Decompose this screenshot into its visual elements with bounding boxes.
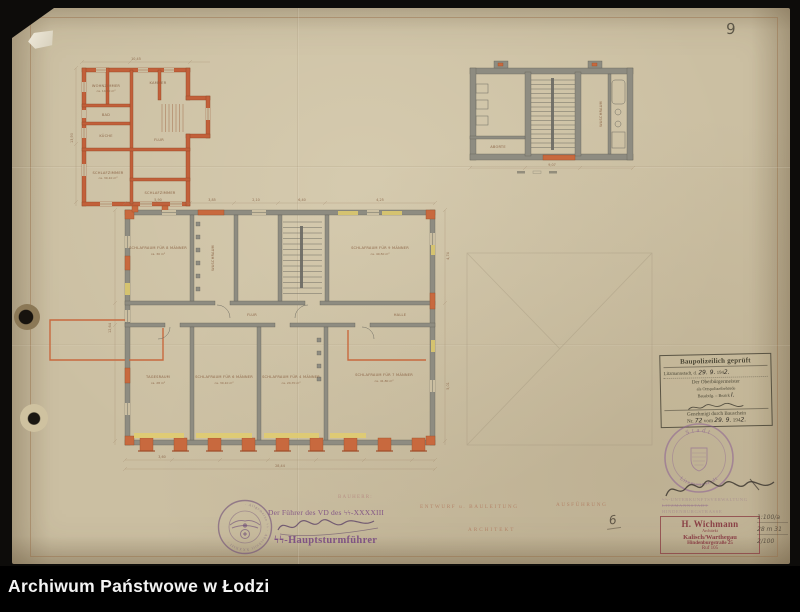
dim-label: 28,44 bbox=[275, 464, 285, 468]
dim-label: 3,60 bbox=[158, 455, 166, 459]
upper-stair-treads bbox=[162, 104, 183, 132]
stamp-year-hand: 2. bbox=[724, 368, 730, 375]
room-label: SCHLAFRAUM FÜR 9 MÄNNER bbox=[351, 245, 409, 250]
architect-title: Architekt bbox=[662, 528, 758, 533]
page-number: 9 bbox=[726, 20, 736, 38]
svg-text:· Allgemeine ϟϟ · Abschnitt XX: · Allgemeine ϟϟ · Abschnitt XXXXIII · bbox=[226, 502, 270, 551]
architect-stamp: H. Wichmann Architekt Kalisch/Warthegau … bbox=[660, 516, 760, 554]
dim-label: 4,25 bbox=[376, 198, 384, 202]
faded-stamp-line: Litzmannstadt bbox=[662, 503, 778, 508]
dim-label: 13,90 bbox=[70, 133, 74, 143]
seal-ring-text: · Allgemeine ϟϟ · Abschnitt XXXXIII · bbox=[226, 502, 270, 551]
architect-phone: Ruf 105 bbox=[662, 546, 758, 551]
area-label: ca. 40,50 m² bbox=[370, 252, 390, 256]
pencil-note: 28 m 31 bbox=[757, 526, 788, 535]
area-label: ca. 30 m² bbox=[151, 252, 166, 256]
stamp-place: Litzmannstadt, d. bbox=[664, 371, 698, 377]
dim-label: 5,90 bbox=[154, 198, 162, 202]
form-label-client: BAUHERR: bbox=[338, 495, 373, 500]
dim-label: 2,10 bbox=[252, 198, 260, 202]
room-label: TAGESRAUM bbox=[145, 375, 170, 379]
building-police-approval-stamp: Baupolizeilich geprüft Litzmannstadt, d.… bbox=[659, 353, 772, 428]
room-label: SCHLAFRAUM FÜR 4 MÄNNER bbox=[262, 374, 320, 379]
punch-hole bbox=[14, 304, 40, 330]
stamp-dept-hand: I. bbox=[731, 391, 735, 398]
window-piers bbox=[138, 438, 427, 451]
area-label: ca. 41,80 m² bbox=[374, 379, 394, 383]
pencil-note: 2/100 bbox=[757, 538, 788, 546]
stamp-vom-year-hand: 2. bbox=[740, 416, 746, 423]
punch-hole bbox=[20, 404, 48, 432]
room-label: WASCHRAUM bbox=[211, 245, 215, 271]
archive-photo: WOHNZIMMER ca. 14,60 m² BAD KÜCHE SCHLAF… bbox=[0, 0, 800, 612]
architect-city: Kalisch/Warthegau bbox=[662, 534, 758, 541]
form-label-architect: ARCHITEKT bbox=[468, 527, 515, 533]
faded-unit-stamp: ϟϟ-Unterkunftsverwaltung Litzmannstadt H… bbox=[662, 497, 778, 515]
partition-outline bbox=[348, 330, 426, 360]
area-label: ca. 24,70 m² bbox=[281, 381, 301, 385]
stair-rail bbox=[300, 226, 303, 288]
area-label: ca. 14,60 m² bbox=[96, 89, 116, 93]
room-label: BAD bbox=[102, 113, 110, 117]
stamp-dept-label: Bauabtlg. – Bezirk bbox=[697, 392, 729, 398]
form-label-execution: AUSFÜHRUNG bbox=[556, 502, 607, 508]
room-label: SCHLAFZIMMER bbox=[145, 191, 176, 195]
ss-round-seal: · Allgemeine ϟϟ · Abschnitt XXXXIII · bbox=[216, 498, 274, 556]
stairwell-plan: ABORTE WASCHRAUM 9,07 bbox=[468, 61, 635, 174]
pencil-note: 1:100/a bbox=[757, 514, 788, 523]
archive-bar-title: Archiwum Państwowe w Łodzi bbox=[8, 576, 270, 597]
room-label: FLUR bbox=[247, 313, 257, 317]
pencil-note-six: 6 bbox=[605, 512, 621, 530]
dim-label: 10,45 bbox=[131, 57, 141, 61]
coat-of-arms-shield bbox=[691, 448, 707, 471]
archive-bar: Archiwum Państwowe w Łodzi bbox=[0, 566, 800, 612]
dim-label: 9,07 bbox=[548, 163, 556, 167]
dim-label: 4,74 bbox=[446, 252, 450, 260]
svg-text:Stadt: Stadt bbox=[685, 427, 714, 437]
form-label-design: ENTWURF u. BAULEITUNG bbox=[420, 504, 519, 510]
pencil-construction-lines bbox=[467, 253, 652, 445]
dim-label: 12,64 bbox=[108, 323, 112, 333]
room-label: KÜCHE bbox=[99, 133, 113, 138]
ss-rank-line: ϟϟ-Hauptsturmführer bbox=[274, 535, 377, 546]
room-label: SCHLAFZIMMER bbox=[93, 171, 124, 175]
room-label: SCHLAFRAUM FÜR 6 MÄNNER bbox=[195, 374, 253, 379]
seal-text-top: Stadt bbox=[685, 427, 714, 437]
upper-floor-plan: WOHNZIMMER ca. 14,60 m² BAD KÜCHE SCHLAF… bbox=[70, 57, 210, 206]
room-label: SCHLAFRAUM FÜR 7 MÄNNER bbox=[355, 372, 413, 377]
stamp-date-hand: 29. 9. bbox=[698, 369, 715, 376]
area-label: ca. 30,10 m² bbox=[214, 381, 234, 385]
approval-stamp-title: Baupolizeilich geprüft bbox=[663, 356, 767, 368]
dim-label: 6,40 bbox=[298, 198, 306, 202]
room-label: ABORTE bbox=[490, 145, 506, 149]
eagle-emblem bbox=[230, 521, 260, 539]
faded-stamp-line: ϟϟ-Unterkunftsverwaltung bbox=[662, 497, 778, 502]
paper-sheet: WOHNZIMMER ca. 14,60 m² BAD KÜCHE SCHLAF… bbox=[12, 8, 790, 564]
area-label: ca. 30,10 m² bbox=[98, 176, 118, 180]
room-label: WASCHRAUM bbox=[599, 101, 603, 127]
partition-outline bbox=[129, 328, 163, 360]
main-floor-plan: SCHLAFRAUM FÜR 8 MÄNNER ca. 30 m² WASCHR… bbox=[50, 198, 450, 471]
room-label: KAMMER bbox=[150, 81, 167, 85]
room-label: WOHNZIMMER bbox=[92, 84, 121, 88]
area-label: ca. 28 m² bbox=[151, 381, 166, 385]
dim-label: 3,85 bbox=[208, 198, 216, 202]
dim-label: 5,01 bbox=[446, 382, 450, 390]
pencil-notes-column: 1:100/a 28 m 31 2/100 bbox=[757, 514, 788, 549]
room-label: SCHLAFRAUM FÜR 8 MÄNNER bbox=[129, 245, 187, 250]
room-label: FLUR bbox=[154, 138, 164, 142]
room-label: HALLE bbox=[394, 313, 407, 317]
